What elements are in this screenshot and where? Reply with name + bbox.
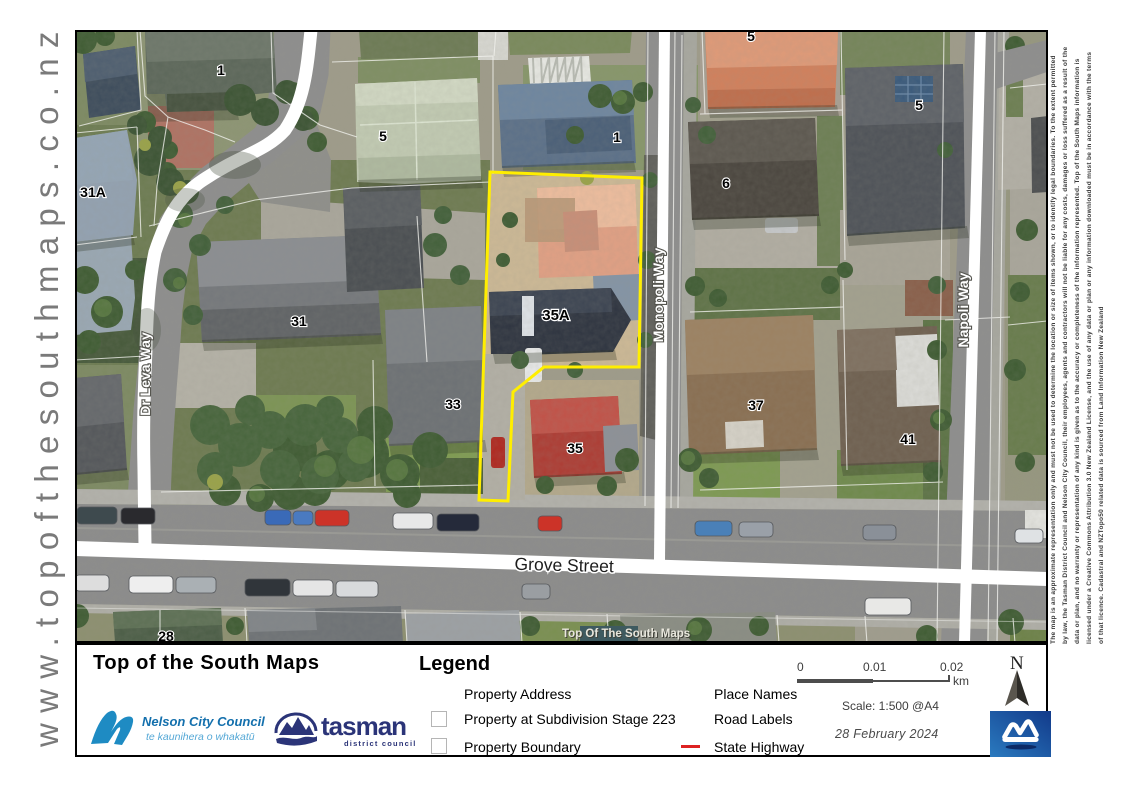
- svg-text:Nelson City Council: Nelson City Council: [142, 714, 265, 729]
- svg-text:5: 5: [379, 128, 387, 144]
- svg-text:0: 0: [797, 660, 804, 674]
- svg-text:district council: district council: [344, 739, 417, 748]
- svg-text:Dr Leva Way: Dr Leva Way: [137, 332, 153, 416]
- svg-text:1: 1: [613, 129, 621, 145]
- svg-text:Grove Street: Grove Street: [514, 554, 614, 577]
- svg-text:Napoli Way: Napoli Way: [955, 272, 971, 347]
- svg-text:31A: 31A: [80, 184, 106, 200]
- svg-text:1: 1: [217, 62, 225, 78]
- svg-text:tasman: tasman: [321, 711, 406, 741]
- svg-text:28: 28: [158, 628, 174, 643]
- svg-text:Monopoli Way: Monopoli Way: [650, 248, 666, 343]
- svg-text:35A: 35A: [542, 307, 570, 324]
- svg-text:km: km: [953, 674, 969, 688]
- svg-text:5: 5: [747, 30, 755, 44]
- svg-text:0.02: 0.02: [940, 660, 964, 674]
- svg-text:6: 6: [722, 175, 730, 191]
- svg-text:33: 33: [445, 396, 461, 412]
- svg-text:37: 37: [748, 397, 764, 413]
- svg-text:0.01: 0.01: [863, 660, 887, 674]
- svg-text:31: 31: [291, 313, 307, 329]
- svg-text:35: 35: [567, 440, 583, 456]
- svg-text:5: 5: [915, 97, 923, 113]
- svg-text:Top Of The South Maps: Top Of The South Maps: [562, 628, 690, 640]
- svg-text:te kaunihera o whakatū: te kaunihera o whakatū: [146, 731, 255, 743]
- svg-text:41: 41: [900, 431, 916, 447]
